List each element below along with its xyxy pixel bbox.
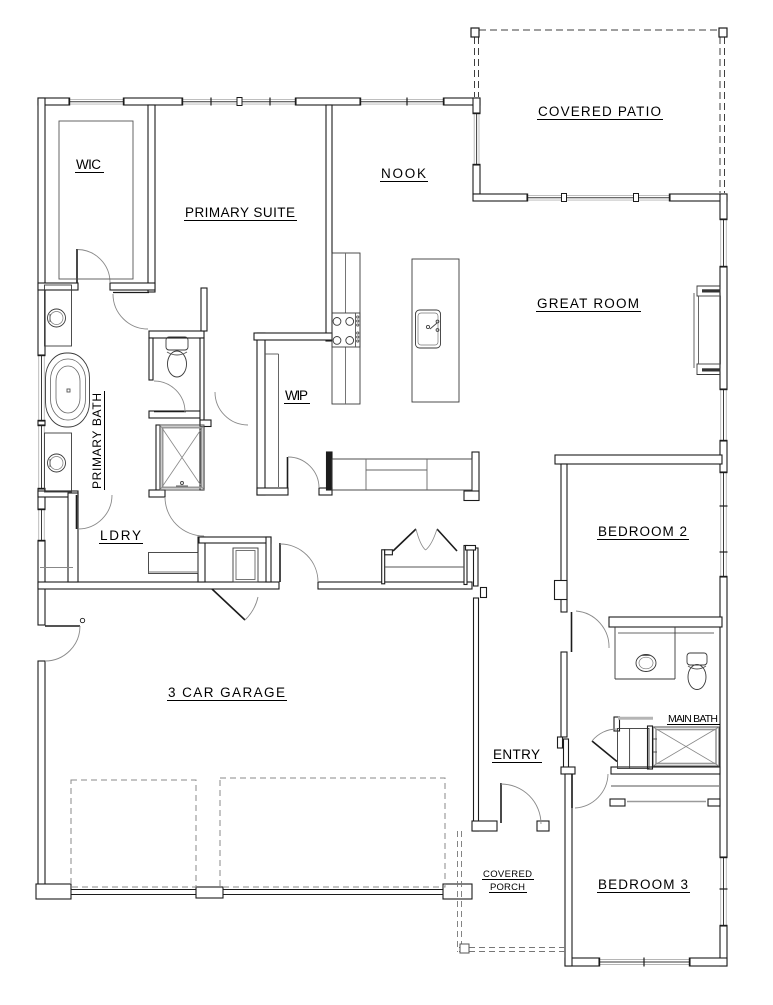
svg-text:BEDROOM 3: BEDROOM 3 bbox=[598, 877, 689, 892]
svg-text:3 CAR GARAGE: 3 CAR GARAGE bbox=[168, 685, 286, 700]
svg-text:MAIN BATH: MAIN BATH bbox=[668, 713, 719, 725]
svg-text:WIC: WIC bbox=[76, 157, 102, 172]
svg-text:COVERED PATIO: COVERED PATIO bbox=[538, 104, 662, 119]
svg-text:ENTRY: ENTRY bbox=[493, 747, 541, 762]
svg-text:LDRY: LDRY bbox=[100, 528, 142, 543]
svg-text:COVERED: COVERED bbox=[483, 869, 533, 880]
svg-text:PORCH: PORCH bbox=[490, 882, 526, 893]
svg-text:GREAT ROOM: GREAT ROOM bbox=[537, 296, 640, 311]
svg-text:PRIMARY SUITE: PRIMARY SUITE bbox=[185, 205, 296, 220]
svg-text:BEDROOM 2: BEDROOM 2 bbox=[598, 524, 688, 539]
svg-text:WIP: WIP bbox=[285, 388, 309, 403]
svg-text:NOOK: NOOK bbox=[381, 166, 427, 181]
svg-text:PRIMARY BATH: PRIMARY BATH bbox=[90, 392, 104, 489]
